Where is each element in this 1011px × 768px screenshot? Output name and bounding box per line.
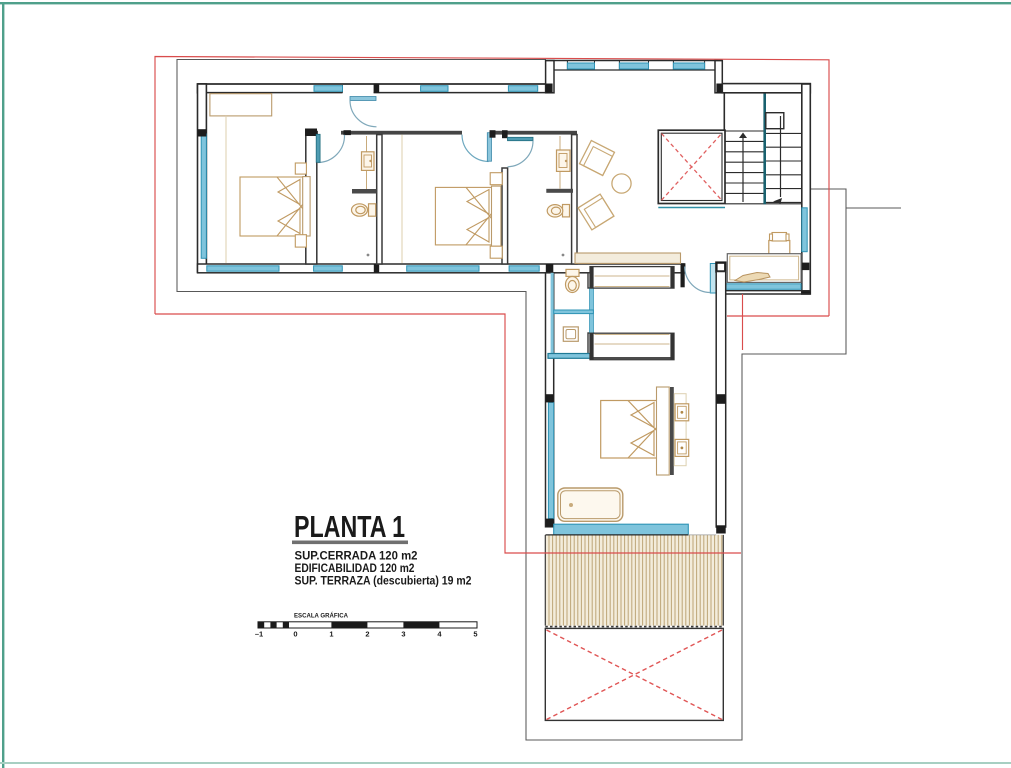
svg-text:ESCALA GRÁFICA: ESCALA GRÁFICA xyxy=(294,611,348,620)
svg-text:0: 0 xyxy=(293,630,297,639)
svg-text:–1: –1 xyxy=(255,630,263,639)
svg-text:5: 5 xyxy=(473,630,477,639)
svg-text:2: 2 xyxy=(365,630,369,639)
svg-text:1: 1 xyxy=(329,630,333,639)
svg-text:SUP. TERRAZA (descubierta) 19: SUP. TERRAZA (descubierta) 19 m2 xyxy=(295,574,472,588)
svg-text:PLANTA 1: PLANTA 1 xyxy=(294,509,405,544)
svg-text:3: 3 xyxy=(401,630,405,639)
